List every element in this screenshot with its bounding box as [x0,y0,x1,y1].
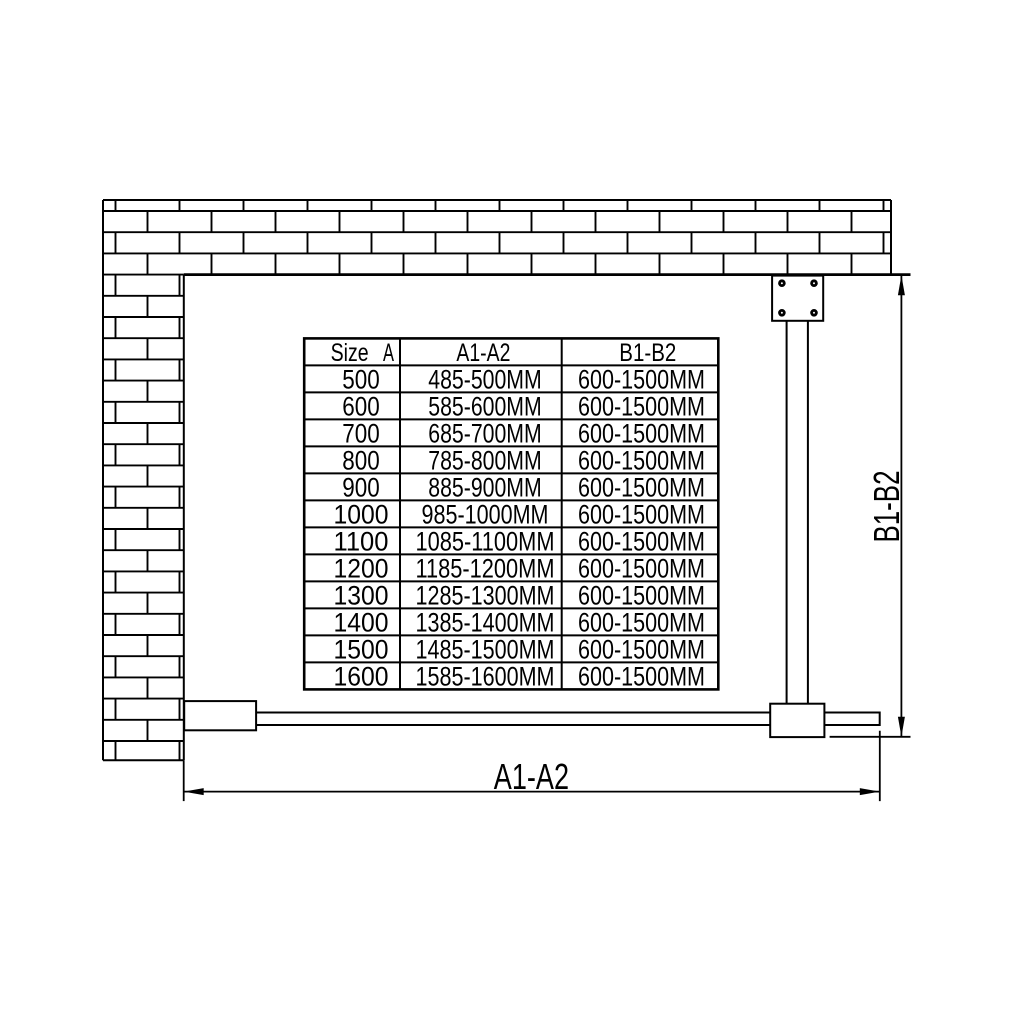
svg-text:800: 800 [342,446,380,476]
svg-text:1285-1300MM: 1285-1300MM [416,581,555,611]
svg-text:1585-1600MM: 1585-1600MM [416,662,555,692]
svg-text:685-700MM: 685-700MM [428,419,542,449]
svg-text:500: 500 [342,365,380,395]
svg-text:1200: 1200 [334,554,389,584]
svg-text:1185-1200MM: 1185-1200MM [416,554,555,584]
svg-text:600-1500MM: 600-1500MM [578,419,705,449]
svg-text:600: 600 [342,392,380,422]
svg-text:700: 700 [342,419,380,449]
svg-text:985-1000MM: 985-1000MM [422,500,549,530]
svg-text:600-1500MM: 600-1500MM [578,527,705,557]
svg-text:1385-1400MM: 1385-1400MM [416,608,555,638]
svg-text:600-1500MM: 600-1500MM [578,608,705,638]
svg-text:600-1500MM: 600-1500MM [578,473,705,503]
svg-text:A: A [383,339,394,367]
svg-text:600-1500MM: 600-1500MM [578,392,705,422]
svg-text:B1-B2: B1-B2 [866,471,907,543]
svg-text:1600: 1600 [334,662,389,692]
svg-text:1100: 1100 [334,527,389,557]
svg-text:885-900MM: 885-900MM [428,473,542,503]
svg-text:A1-A2: A1-A2 [456,339,510,367]
svg-text:600-1500MM: 600-1500MM [578,500,705,530]
svg-text:485-500MM: 485-500MM [428,365,542,395]
svg-text:900: 900 [342,473,380,503]
svg-text:A1-A2: A1-A2 [494,756,569,797]
svg-text:1300: 1300 [334,581,389,611]
svg-text:1085-1100MM: 1085-1100MM [416,527,555,557]
svg-text:1000: 1000 [334,500,389,530]
svg-text:785-800MM: 785-800MM [428,446,542,476]
svg-text:585-600MM: 585-600MM [428,392,542,422]
svg-text:1400: 1400 [334,608,389,638]
svg-text:600-1500MM: 600-1500MM [578,554,705,584]
svg-text:600-1500MM: 600-1500MM [578,662,705,692]
svg-text:Size: Size [331,339,369,367]
svg-text:B1-B2: B1-B2 [619,339,676,367]
svg-text:600-1500MM: 600-1500MM [578,635,705,665]
svg-text:1500: 1500 [334,635,389,665]
svg-text:600-1500MM: 600-1500MM [578,446,705,476]
svg-text:1485-1500MM: 1485-1500MM [416,635,555,665]
svg-text:600-1500MM: 600-1500MM [578,365,705,395]
svg-text:600-1500MM: 600-1500MM [578,581,705,611]
